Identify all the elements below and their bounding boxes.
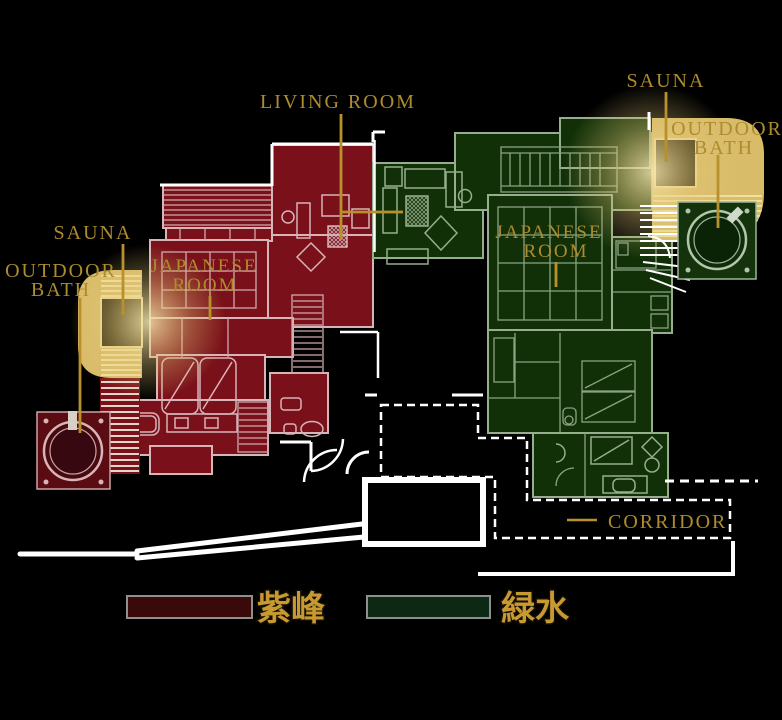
legend-label-ryokusui: 緑水	[501, 589, 570, 629]
sauna-left-label: SAUNA	[54, 222, 133, 244]
floorplan-svg: LIVING ROOM SAUNA OUTDOOR BATH SAUNA OUT…	[0, 0, 782, 720]
outdoor-bath-left-label-line2: BATH	[31, 279, 91, 301]
legend-label-shihou: 紫峰	[257, 589, 325, 629]
japanese-room-right-label-line2: ROOM	[523, 241, 588, 262]
japanese-room-left-label-line2: ROOM	[172, 275, 237, 296]
left-outdoor-bath-tub	[37, 411, 110, 489]
living-room-label: LIVING ROOM	[260, 91, 416, 113]
sauna-right-label: SAUNA	[627, 70, 706, 92]
corridor-label: CORRIDOR	[608, 511, 727, 533]
floorplan-stage: LIVING ROOM SAUNA OUTDOOR BATH SAUNA OUT…	[0, 0, 782, 720]
left-tub-faucet	[68, 411, 77, 430]
legend-swatch-shihou	[127, 596, 252, 618]
entrance-hall	[365, 480, 483, 544]
japanese-room-right-label-line1: JAPANESE	[495, 222, 602, 243]
outdoor-bath-right-label-line2: BATH	[694, 137, 754, 159]
japanese-room-left-label-line1: JAPANESE	[150, 256, 257, 277]
legend-swatch-ryokusui	[367, 596, 490, 618]
